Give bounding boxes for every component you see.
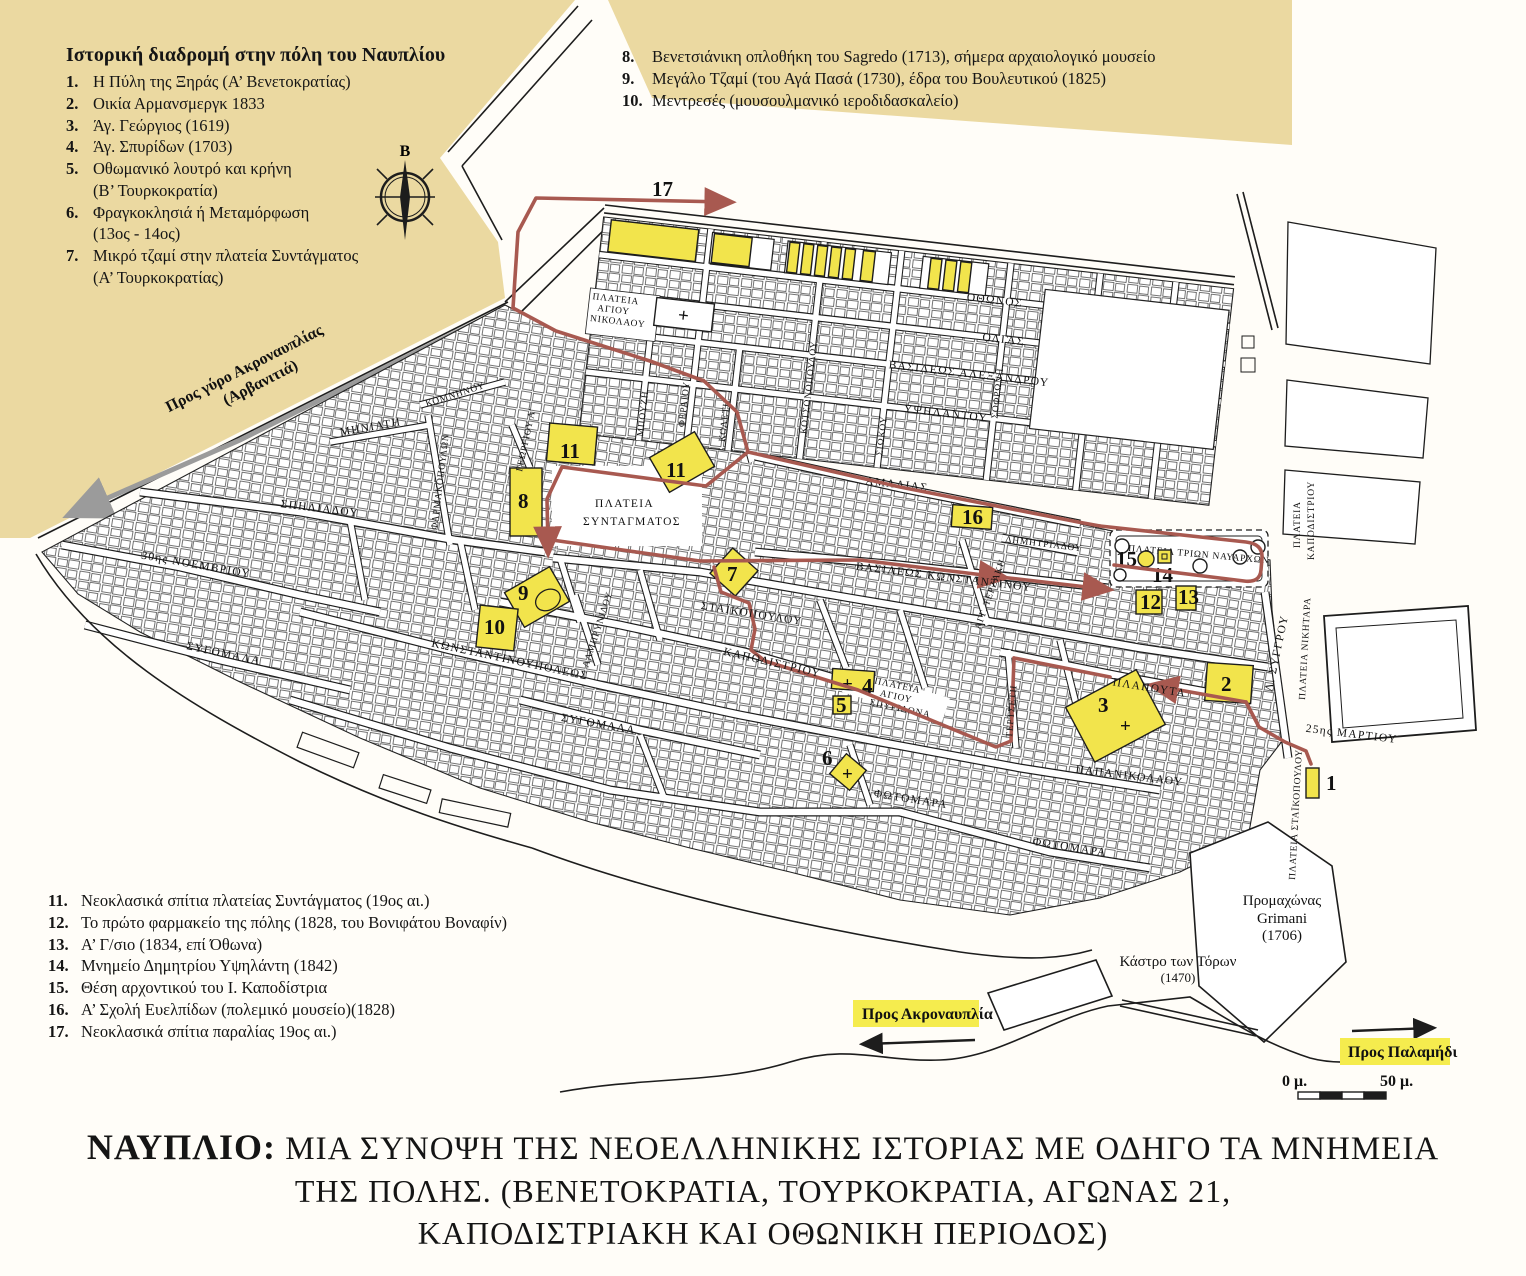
legend-item-11: 11.Νεοκλασικά σπίτια πλατείας Συντάγματο… — [48, 890, 548, 912]
svg-text:16: 16 — [962, 505, 983, 529]
square-label-kapodistriou-1: ΠΛΑΤΕΙΑ — [1293, 501, 1303, 548]
legend-item-16: 16.Α’ Σχολή Ευελπίδων (πολεμικό μουσείο)… — [48, 999, 548, 1021]
svg-text:11: 11 — [560, 439, 580, 463]
svg-text:ΣΥΝΤΑΓΜΑΤΟΣ: ΣΥΝΤΑΓΜΑΤΟΣ — [583, 516, 681, 528]
church-cross-icon: + — [1120, 716, 1131, 737]
svg-text:ΠΛΑΤΕΙΑ: ΠΛΑΤΕΙΑ — [595, 498, 654, 510]
legend-item-15: 15.Θέση αρχοντικού του Ι. Καποδίστρια — [48, 977, 548, 999]
east-blocks — [1237, 192, 1436, 544]
legend-title: Ιστορική διαδρομή στην πόλη του Ναυπλίου — [66, 44, 451, 67]
svg-text:9: 9 — [518, 581, 529, 605]
monument-14 — [1158, 550, 1171, 563]
legend-item-10: 10.Μεντρεσές (μουσουλμανικό ιεροδιδασκαλ… — [622, 90, 1262, 112]
pros-akronafplia: Προς Ακροναυπλία — [853, 1000, 993, 1044]
trion-navarchon-square: ΠΛΑΤΕΙΑ ΤΡΙΩΝ ΝΑΥΑΡΧΩΝ 15 14 — [1110, 530, 1270, 587]
svg-text:Προς Παλαμήδι: Προς Παλαμήδι — [1348, 1044, 1457, 1061]
svg-text:Προς Ακροναυπλία: Προς Ακροναυπλία — [862, 1006, 993, 1023]
svg-text:14: 14 — [1152, 563, 1174, 587]
legend-item-1: 1.Η Πύλη της Ξηράς (Α’ Βενετοκρατίας) — [66, 71, 451, 93]
svg-text:1: 1 — [1326, 771, 1337, 795]
title-line-1: ΝΑΥΠΛΙΟ: ΜΙΑ ΣΥΝΟΨΗ ΤΗΣ ΝΕΟΕΛΛΗΝΙΚΗΣ ΙΣΤ… — [0, 1126, 1526, 1168]
legend-bottom-left: 11.Νεοκλασικά σπίτια πλατείας Συντάγματο… — [48, 890, 548, 1042]
title-line-3: ΚΑΠΟΔΙΣΤΡΙΑΚΗ ΚΑΙ ΟΘΩΝΙΚΗ ΠΕΡΙΟΔΟΣ) — [0, 1215, 1526, 1252]
svg-text:Προμαχώνας: Προμαχώνας — [1243, 893, 1322, 909]
square-label-nikitara: ΠΛΑΤΕΙΑ ΝΙΚΗΤΑΡΑ — [1298, 597, 1313, 700]
title-line-2: ΤΗΣ ΠΟΛΗΣ. (ΒΕΝΕΤΟΚΡΑΤΙΑ, ΤΟΥΡΚΟΚΡΑΤΙΑ, … — [0, 1173, 1526, 1210]
map-page: + ΠΛΑΤΕΙΑ ΑΓΙΟΥ ΝΙΚΟΛΑΟΥ ΟΘΩΝΟΣ ΟΛΓΑΣ ΒΑ… — [0, 0, 1526, 1276]
svg-text:50 μ.: 50 μ. — [1380, 1073, 1413, 1090]
svg-text:3: 3 — [1098, 693, 1109, 717]
legend-item-2: 2.Οικία Αρμανσμεργκ 1833 — [66, 93, 451, 115]
legend-item-12: 12.Το πρώτο φαρμακείο της πόλης (1828, τ… — [48, 912, 548, 934]
legend-item-6: 6.Φραγκοκλησιά ή Μεταμόρφωση (13ος - 14ο… — [66, 202, 451, 246]
svg-text:0 μ.: 0 μ. — [1282, 1073, 1307, 1090]
legend-item-9: 9.Μεγάλο Τζαμί (του Αγά Πασά (1730), έδρ… — [622, 68, 1262, 90]
svg-text:12: 12 — [1140, 590, 1161, 614]
large-empty-block — [1029, 289, 1229, 449]
scale-bar: 0 μ. 50 μ. — [1282, 1073, 1413, 1099]
main-title: ΝΑΥΠΛΙΟ: ΜΙΑ ΣΥΝΟΨΗ ΤΗΣ ΝΕΟΕΛΛΗΝΙΚΗΣ ΙΣΤ… — [0, 1126, 1526, 1252]
nikitara-park — [1324, 606, 1476, 742]
legend-item-3: 3.Άγ. Γεώργιος (1619) — [66, 115, 451, 137]
legend-item-14: 14.Μνημείο Δημητρίου Υψηλάντη (1842) — [48, 955, 548, 977]
svg-text:10: 10 — [484, 615, 505, 639]
church-cross-icon: + — [842, 764, 853, 785]
svg-text:6: 6 — [822, 746, 833, 770]
square-label-kapodistriou-2: ΚΑΠΟΔΙΣΤΡΙΟΥ — [1307, 481, 1317, 560]
legend-item-13: 13.Α’ Γ/σιο (1834, επί Όθωνα) — [48, 934, 548, 956]
svg-text:8: 8 — [518, 489, 529, 513]
legend-top-left: Ιστορική διαδρομή στην πόλη του Ναυπλίου… — [66, 44, 451, 289]
svg-text:Κάστρο των Τόρων: Κάστρο των Τόρων — [1120, 954, 1237, 970]
svg-text:11: 11 — [666, 458, 686, 482]
svg-text:2: 2 — [1221, 672, 1232, 696]
legend-item-5: 5.Οθωμανικό λουτρό και κρήνη (Β’ Τουρκοκ… — [66, 158, 451, 202]
svg-text:(1470): (1470) — [1161, 970, 1196, 985]
svg-text:Grimani: Grimani — [1257, 911, 1307, 927]
legend-item-17: 17.Νεοκλασικά σπίτια παραλίας 19ος αι.) — [48, 1021, 548, 1043]
kastro-toron: Κάστρο των Τόρων (1470) — [988, 954, 1237, 1030]
svg-text:13: 13 — [1178, 585, 1199, 609]
route-17-label: 17 — [652, 177, 673, 201]
pros-palamidi: Προς Παλαμήδι — [1340, 1028, 1457, 1065]
svg-text:7: 7 — [727, 562, 738, 586]
svg-text:(1706): (1706) — [1262, 928, 1302, 944]
monument-1 — [1306, 768, 1319, 798]
legend-item-7: 7.Μικρό τζαμί στην πλατεία Συντάγματος (… — [66, 245, 451, 289]
palamidi-arrow — [1352, 1028, 1430, 1031]
legend-top-right: 8.Βενετσιάνικη οπλοθήκη του Sagredo (171… — [622, 46, 1262, 111]
legend-item-4: 4.Άγ. Σπυρίδων (1703) — [66, 136, 451, 158]
akronafplia-arrow — [866, 1040, 975, 1044]
legend-item-8: 8.Βενετσιάνικη οπλοθήκη του Sagredo (171… — [622, 46, 1262, 68]
svg-text:5: 5 — [836, 693, 847, 717]
grimani-bastion: Προμαχώνας Grimani (1706) — [1190, 822, 1346, 1042]
